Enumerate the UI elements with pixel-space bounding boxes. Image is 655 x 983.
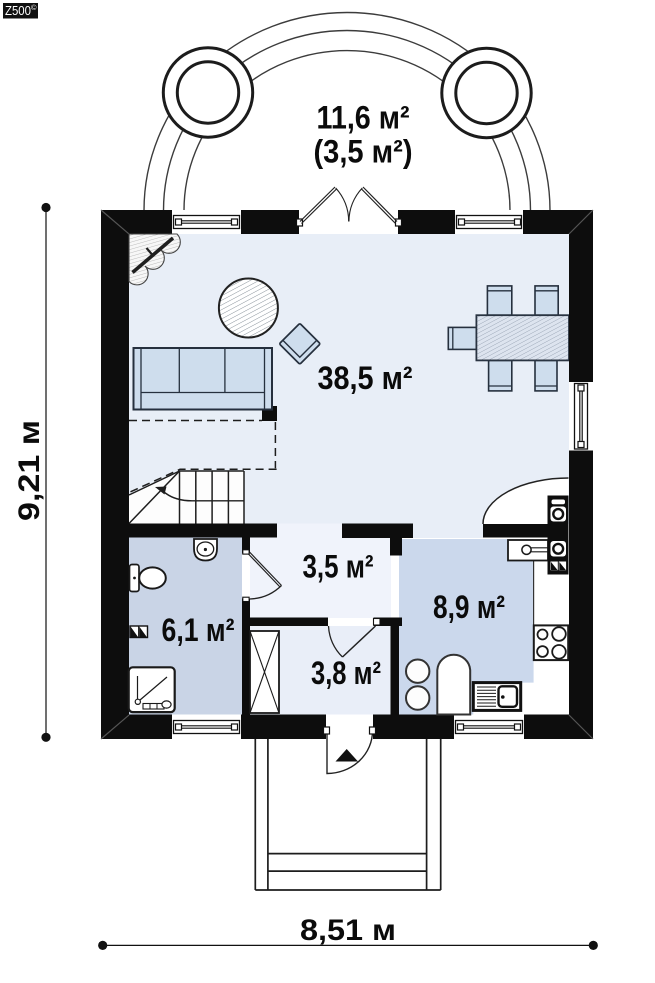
- svg-text:8,51 м: 8,51 м: [300, 914, 396, 947]
- svg-text:(3,5 м²): (3,5 м²): [314, 134, 413, 170]
- svg-text:3,5 м²: 3,5 м²: [303, 549, 374, 585]
- svg-text:3,8 м²: 3,8 м²: [311, 655, 381, 691]
- svg-text:8,9 м²: 8,9 м²: [433, 589, 505, 625]
- svg-text:11,6 м²: 11,6 м²: [317, 100, 410, 136]
- svg-text:9,21 м: 9,21 м: [13, 420, 46, 521]
- svg-text:Z500: Z500: [5, 4, 31, 18]
- svg-text:6,1 м²: 6,1 м²: [162, 612, 235, 648]
- svg-text:38,5 м²: 38,5 м²: [318, 360, 413, 396]
- svg-text:©: ©: [31, 3, 37, 12]
